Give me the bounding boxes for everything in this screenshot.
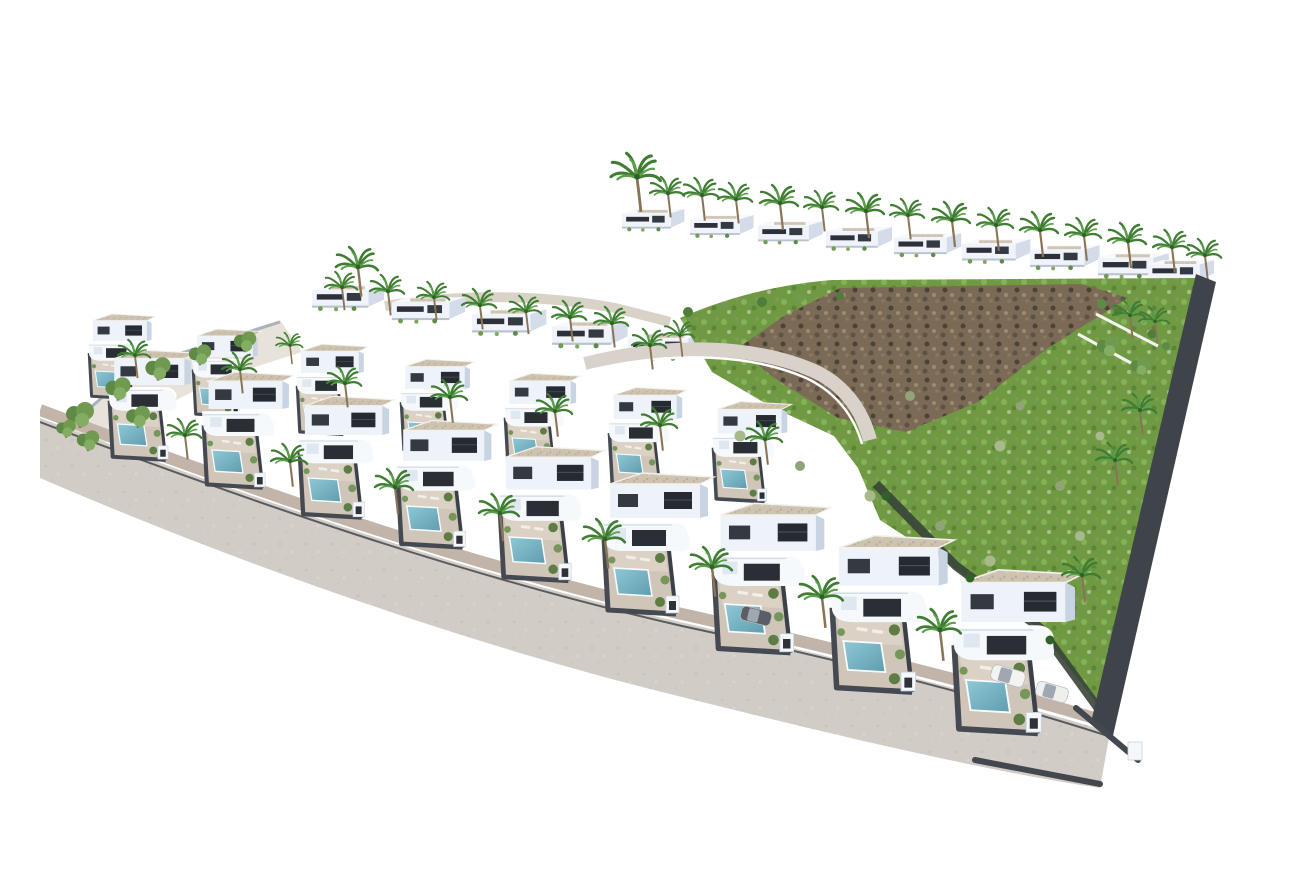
bush [1016,402,1025,411]
bush [1075,531,1085,541]
bush [1148,330,1157,339]
bush [683,307,693,317]
bush [905,391,915,401]
bush [985,556,996,567]
bush [720,302,729,311]
render-scene [40,16,1290,856]
bush [1055,481,1065,491]
bush [735,431,746,442]
bush [865,491,876,502]
bush [836,292,844,300]
bush [757,297,767,307]
bush [935,521,945,531]
bush [1096,432,1105,441]
bush [795,461,805,471]
bush [1097,299,1107,309]
bush [882,492,891,501]
bush [796,294,805,303]
bush [995,441,1006,452]
bush [966,574,975,583]
aerial-villa-development-render [40,16,1290,856]
bush [1046,636,1055,645]
bush [1162,342,1170,350]
corner-gate-pillar [1128,742,1142,760]
